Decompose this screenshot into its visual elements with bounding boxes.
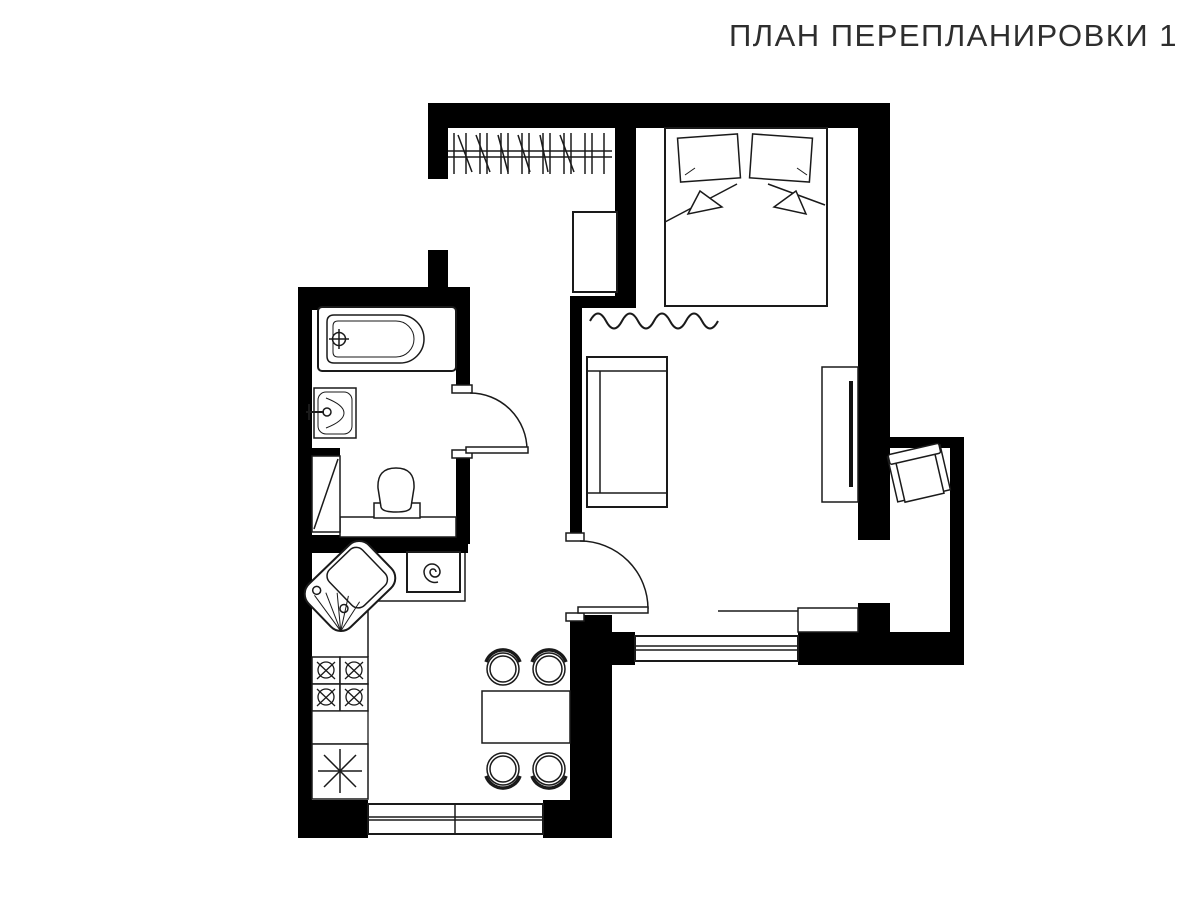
wall-bedroom-right: [858, 127, 890, 540]
chair: [486, 753, 520, 788]
wall-hall-left-upper: [428, 103, 448, 179]
chair: [486, 650, 520, 685]
toilet-bowl: [378, 468, 414, 512]
bathroom-door: [452, 385, 528, 458]
dresser: [573, 212, 617, 292]
wall-top: [428, 103, 890, 128]
wall-bath-right-upper: [456, 310, 470, 392]
door-leaf: [578, 607, 648, 613]
door-swing-arc: [580, 541, 648, 609]
dining-set: [482, 650, 570, 788]
pillow-left: [678, 134, 741, 182]
toilet-shelf: [340, 517, 456, 537]
door-swing-arc: [470, 393, 527, 450]
toilet: [340, 468, 456, 537]
wall-living-bottom-right: [798, 632, 890, 665]
wall-shaft-stub: [312, 448, 340, 456]
washing-machine: [407, 552, 460, 592]
stove-four-burners: [312, 657, 368, 711]
floor-plan-sheet: ПЛАН ПЕРЕПЛАНИРОВКИ 1: [0, 0, 1200, 900]
wall-balcony-pier: [858, 603, 890, 632]
tv: [849, 381, 853, 487]
tv-console: [822, 367, 858, 502]
wall-hall-bedroom-divider: [615, 127, 636, 308]
hangers: [454, 133, 604, 174]
armchair: [887, 443, 951, 504]
wall-living-partition: [570, 308, 582, 540]
wall-bath-right-lower: [456, 452, 470, 544]
base-cabinet: [312, 711, 368, 744]
floor-plan-drawing: [0, 0, 1200, 900]
wall-balcony-bottom: [890, 632, 964, 665]
wardrobe-hanger-rail: [448, 133, 612, 174]
curtain-divider: [590, 314, 718, 329]
double-bed: [665, 128, 827, 306]
washbasin: [306, 388, 356, 438]
refrigerator: [312, 744, 368, 799]
wall-balcony-right: [950, 437, 964, 665]
wall-left-outer: [298, 287, 312, 838]
bathtub: [318, 307, 456, 371]
kitchen-door: [566, 533, 648, 621]
wall-kitchen-bottom-right: [543, 800, 612, 838]
living-room-window: [635, 611, 798, 661]
wall-living-left-stub: [570, 296, 636, 308]
chair: [532, 650, 566, 685]
dining-table: [482, 691, 570, 743]
wall-kitchen-bottom-left: [298, 800, 368, 838]
sofa: [587, 357, 667, 507]
snowflake-icon: [318, 749, 362, 793]
wall-living-bottom-left: [582, 632, 635, 665]
chair: [532, 753, 566, 788]
vent-shaft: [312, 456, 340, 532]
pillow-right: [750, 134, 813, 182]
radiator: [798, 608, 858, 632]
kitchen-window: [368, 804, 543, 834]
door-leaf: [466, 447, 528, 453]
